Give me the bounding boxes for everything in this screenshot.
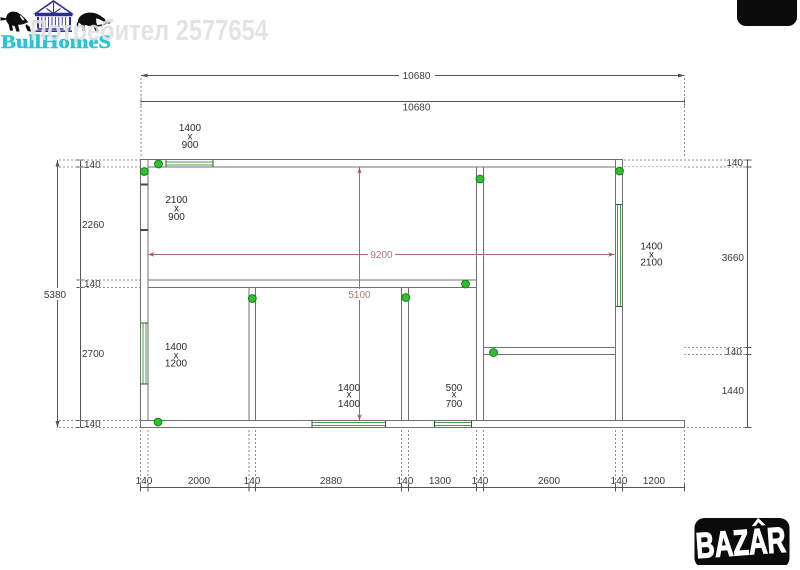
svg-text:9200: 9200 — [370, 250, 393, 261]
svg-text:1200: 1200 — [165, 359, 188, 370]
svg-text:5100: 5100 — [348, 290, 371, 301]
svg-text:1440: 1440 — [722, 386, 745, 397]
svg-text:2100: 2100 — [640, 258, 663, 269]
svg-text:1300: 1300 — [429, 476, 452, 487]
svg-text:140: 140 — [397, 476, 414, 487]
svg-text:1400: 1400 — [338, 399, 361, 410]
svg-text:Потребител 2577654: Потребител 2577654 — [30, 15, 268, 47]
svg-text:BAZAR: BAZAR — [695, 519, 788, 565]
svg-text:140: 140 — [84, 279, 101, 290]
svg-text:140: 140 — [244, 476, 261, 487]
svg-text:140: 140 — [136, 476, 153, 487]
svg-text:10680: 10680 — [403, 103, 431, 114]
svg-text:2600: 2600 — [538, 476, 561, 487]
svg-text:700: 700 — [446, 399, 463, 410]
svg-text:900: 900 — [182, 140, 199, 151]
svg-text:3660: 3660 — [722, 253, 745, 264]
svg-text:900: 900 — [168, 212, 185, 223]
svg-text:1200: 1200 — [643, 476, 666, 487]
svg-text:2000: 2000 — [188, 476, 211, 487]
svg-text:140: 140 — [84, 160, 101, 171]
svg-text:140: 140 — [725, 347, 742, 358]
svg-text:2880: 2880 — [320, 476, 343, 487]
svg-text:140: 140 — [472, 476, 489, 487]
svg-text:10680: 10680 — [403, 71, 431, 82]
svg-text:140: 140 — [611, 476, 628, 487]
svg-text:2700: 2700 — [82, 349, 105, 360]
svg-text:5380: 5380 — [44, 290, 67, 301]
svg-text:2260: 2260 — [82, 220, 105, 231]
